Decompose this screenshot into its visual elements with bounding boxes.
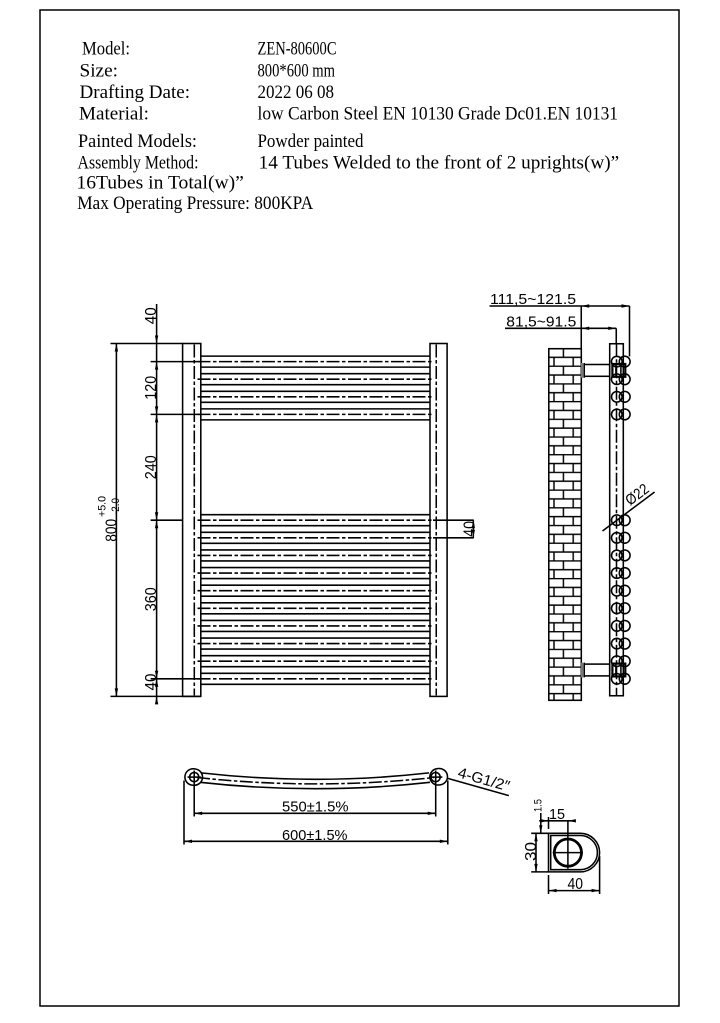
svg-text:111,5~121.5: 111,5~121.5 <box>490 291 576 308</box>
svg-text:40: 40 <box>143 673 160 690</box>
svg-text:Model:: Model: <box>82 40 130 60</box>
svg-text:30: 30 <box>523 842 540 861</box>
svg-text:360: 360 <box>143 587 160 611</box>
svg-text:+5.0: +5.0 <box>97 496 109 517</box>
svg-text:15: 15 <box>549 806 565 823</box>
svg-text:40: 40 <box>143 307 160 324</box>
svg-text:Assembly Method:: Assembly Method: <box>78 153 199 173</box>
svg-text:1.5: 1.5 <box>532 799 544 812</box>
svg-text:Material:: Material: <box>79 105 149 125</box>
svg-text:40: 40 <box>461 521 478 537</box>
svg-text:-2.0: -2.0 <box>110 498 122 515</box>
svg-text:16Tubes in Total(w)”: 16Tubes in Total(w)” <box>76 174 244 194</box>
svg-text:Painted Models:: Painted Models: <box>78 132 197 152</box>
svg-text:120: 120 <box>143 376 160 400</box>
svg-text:14 Tubes Welded to the front o: 14 Tubes Welded to the front of 2 uprigh… <box>259 153 620 173</box>
svg-text:240: 240 <box>143 455 160 479</box>
svg-text:low Carbon Steel EN 10130 Gra: low Carbon Steel EN 10130 Grade Dc01.EN … <box>258 105 619 125</box>
svg-text:ZEN-80600C: ZEN-80600C <box>258 40 337 60</box>
svg-text:800: 800 <box>104 519 121 542</box>
svg-text:600±1.5%: 600±1.5% <box>282 827 348 844</box>
svg-text:Drafting Date:: Drafting Date: <box>80 83 191 103</box>
svg-text:Max Operating Pressure: 800KPA: Max Operating Pressure: 800KPA <box>77 194 314 214</box>
svg-text:40: 40 <box>568 876 584 893</box>
svg-text:Size:: Size: <box>80 61 119 81</box>
svg-text:2022 06 08: 2022 06 08 <box>258 83 335 103</box>
svg-text:800*600 mm: 800*600 mm <box>258 61 336 81</box>
svg-text:Powder painted: Powder painted <box>258 132 365 152</box>
svg-text:550±1.5%: 550±1.5% <box>282 798 349 815</box>
svg-text:81,5~91.5: 81,5~91.5 <box>506 313 576 330</box>
